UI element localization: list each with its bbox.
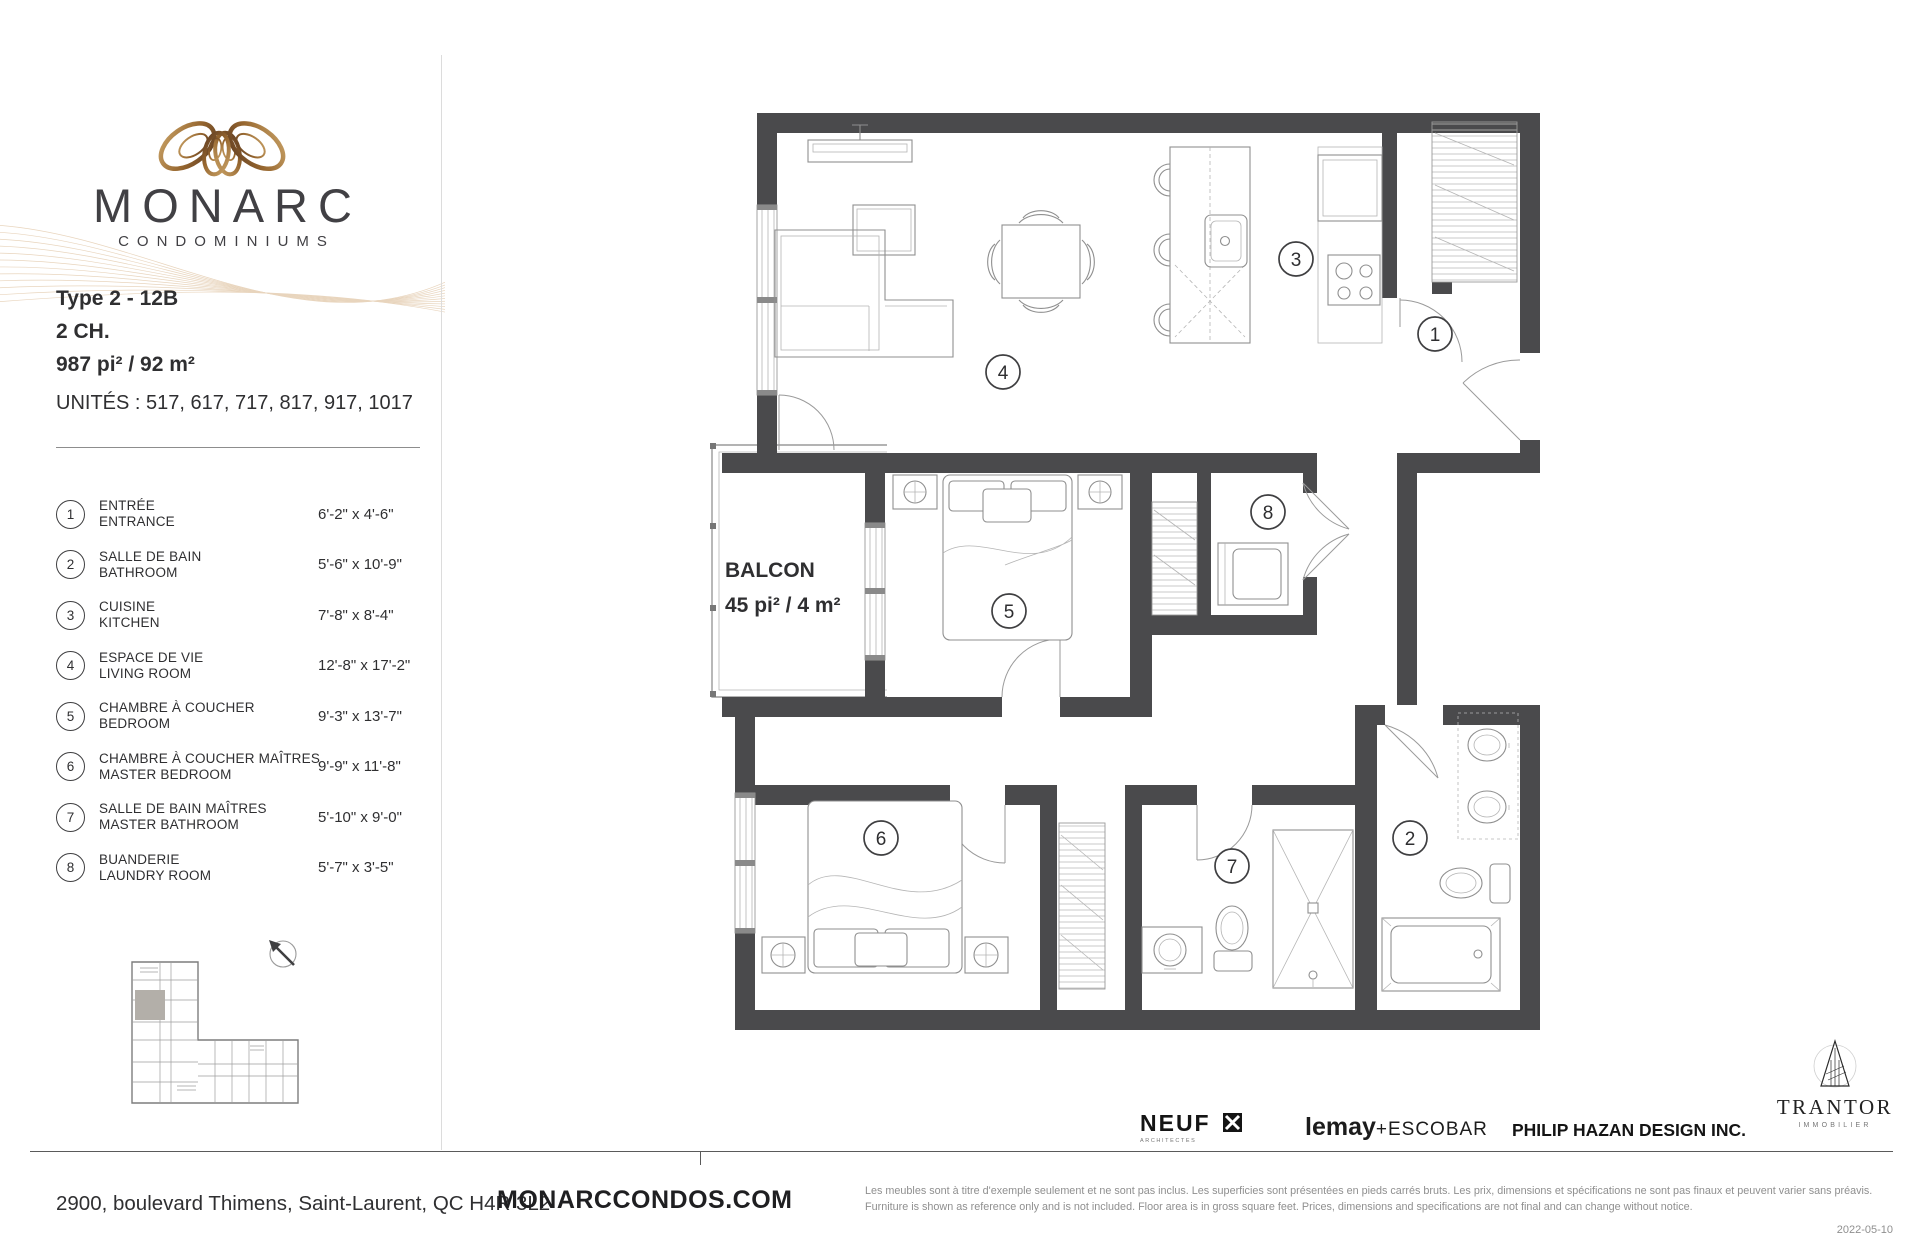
unit-numbers: UNITÉS : 517, 617, 717, 817, 917, 1017 xyxy=(56,392,413,415)
legend-number-badge: 7 xyxy=(56,803,85,832)
lemay-wordmark: lemay xyxy=(1305,1113,1376,1141)
legend-label-en: LIVING ROOM xyxy=(99,666,203,682)
room-badge: 1 xyxy=(1418,317,1452,351)
svg-text:6: 6 xyxy=(876,829,887,850)
bathtub-icon xyxy=(1382,918,1500,991)
room-badge: 5 xyxy=(992,594,1026,628)
legend-row: 2 SALLE DE BAINBATHROOM 5'-6" x 10'-9" xyxy=(56,540,431,591)
legend-number-badge: 1 xyxy=(56,500,85,529)
project-address: 2900, boulevard Thimens, Saint-Laurent, … xyxy=(56,1192,550,1216)
dining-table-icon xyxy=(988,211,1095,313)
neuf-wordmark: NEUF xyxy=(1140,1112,1211,1135)
website-link[interactable]: MONARCCONDOS.COM xyxy=(497,1186,793,1215)
building-key-plan xyxy=(132,962,298,1103)
brand-tagline: CONDOMINIUMS xyxy=(0,233,445,250)
room-badge: 7 xyxy=(1215,849,1249,883)
legend-label-fr: ENTRÉE xyxy=(99,498,175,514)
legend-label-fr: BUANDERIE xyxy=(99,852,211,868)
highlighted-unit xyxy=(135,990,165,1020)
footer-divider-tick xyxy=(700,1151,701,1165)
svg-text:7: 7 xyxy=(1227,857,1238,878)
legend-row: 8 BUANDERIELAUNDRY ROOM 5'-7" x 3'-5" xyxy=(56,843,431,894)
legend-label-fr: SALLE DE BAIN xyxy=(99,549,201,565)
legend-row: 4 ESPACE DE VIELIVING ROOM 12'-8" x 17'-… xyxy=(56,641,431,692)
escobar-wordmark: +ESCOBAR xyxy=(1376,1119,1488,1140)
svg-text:1: 1 xyxy=(1430,325,1441,346)
legend-row: 6 CHAMBRE À COUCHER MAÎTRESMASTER BEDROO… xyxy=(56,742,431,793)
legend-number-badge: 8 xyxy=(56,853,85,882)
legend-dimension: 6'-2" x 4'-6" xyxy=(318,506,394,523)
legend-label-en: BATHROOM xyxy=(99,565,201,581)
butterfly-logo-icon xyxy=(153,114,292,178)
laundry-double-doors xyxy=(1303,483,1349,580)
shower-icon xyxy=(1273,830,1353,988)
legend-dimension: 9'-3" x 13'-7" xyxy=(318,708,402,725)
legend-dimension: 5'-6" x 10'-9" xyxy=(318,556,402,573)
svg-text:2: 2 xyxy=(1405,829,1416,850)
balcony: BALCON 45 pi² / 4 m² xyxy=(710,443,887,697)
legend-row: 3 CUISINEKITCHEN 7'-8" x 8'-4" xyxy=(56,590,431,641)
legend-number-badge: 2 xyxy=(56,550,85,579)
legend-dimension: 5'-7" x 3'-5" xyxy=(318,859,394,876)
legend-label-en: LAUNDRY ROOM xyxy=(99,868,211,884)
room-badge: 2 xyxy=(1393,821,1427,855)
trantor-subtitle: IMMOBILIER xyxy=(1775,1122,1895,1129)
legend-label-en: ENTRANCE xyxy=(99,514,175,530)
legend-label-fr: CUISINE xyxy=(99,599,160,615)
nightstand-icon xyxy=(965,937,1008,973)
unit-type: Type 2 - 12B xyxy=(56,282,195,315)
svg-text:4: 4 xyxy=(998,363,1009,384)
legend-label-fr: CHAMBRE À COUCHER MAÎTRES xyxy=(99,751,320,767)
disclaimer-fr: Les meubles sont à titre d'exemple seule… xyxy=(865,1183,1893,1199)
sofa-icon xyxy=(775,230,953,357)
nightstand-icon xyxy=(762,937,805,973)
plan-date: 2022-05-10 xyxy=(865,1224,1893,1236)
kitchen-island-icon xyxy=(1170,147,1250,343)
bedroom-sliding-door xyxy=(865,523,885,660)
neuf-icon xyxy=(1223,1113,1242,1132)
bedroom-door xyxy=(1002,639,1060,697)
legend-dimension: 12'-8" x 17'-2" xyxy=(318,657,410,674)
legend-label-fr: ESPACE DE VIE xyxy=(99,650,203,666)
toilet-icon xyxy=(1440,864,1510,903)
toilet-icon xyxy=(1214,906,1252,971)
entry-door xyxy=(1463,360,1520,440)
neuf-subtitle: ARCHITECTES xyxy=(1140,1138,1211,1144)
room-badge: 8 xyxy=(1251,495,1285,529)
neuf-logo: NEUF ARCHITECTES xyxy=(1140,1112,1242,1144)
kitchen-furniture xyxy=(1154,147,1382,343)
lemay-escobar-logo: lemay+ESCOBAR xyxy=(1305,1113,1488,1142)
living-room-furniture xyxy=(775,125,1094,357)
legend-label-fr: CHAMBRE À COUCHER xyxy=(99,700,255,716)
trantor-wordmark: TRANTOR xyxy=(1775,1095,1895,1120)
bathroom-door xyxy=(1385,725,1438,778)
legend-row: 1 ENTRÉEENTRANCE 6'-2" x 4'-6" xyxy=(56,489,431,540)
floor-plan: BALCON 45 pi² / 4 m² xyxy=(585,85,1575,1045)
room-legend: 1 ENTRÉEENTRANCE 6'-2" x 4'-6" 2 SALLE D… xyxy=(56,489,431,893)
master-bedroom-window xyxy=(735,793,755,933)
sidebar-rule xyxy=(56,447,420,448)
double-vanity-icon xyxy=(1458,713,1518,839)
master-bathroom-fixtures xyxy=(1142,830,1353,988)
floor-plan-page: MONARC CONDOMINIUMS Type 2 - 12B 2 CH. 9… xyxy=(0,0,1920,1242)
trantor-tree-icon xyxy=(1813,1038,1857,1090)
legend-number-badge: 5 xyxy=(56,702,85,731)
legend-number-badge: 6 xyxy=(56,752,85,781)
legend-dimension: 7'-8" x 8'-4" xyxy=(318,607,394,624)
footer-rule xyxy=(30,1151,1893,1152)
legend-number-badge: 3 xyxy=(56,601,85,630)
room-badge: 4 xyxy=(986,355,1020,389)
stove-icon xyxy=(1328,255,1380,305)
balcony-area: 45 pi² / 4 m² xyxy=(725,594,841,617)
legend-label-en: MASTER BEDROOM xyxy=(99,767,320,783)
legend-label-en: KITCHEN xyxy=(99,615,160,631)
room-badge: 6 xyxy=(864,821,898,855)
disclaimer-en: Furniture is shown as reference only and… xyxy=(865,1199,1893,1215)
legend-row: 7 SALLE DE BAIN MAÎTRESMASTER BATHROOM 5… xyxy=(56,792,431,843)
nightstand-icon xyxy=(893,475,937,509)
bar-stools-icon xyxy=(1154,164,1170,336)
walk-in-closet xyxy=(1059,823,1105,989)
legend-number-badge: 4 xyxy=(56,651,85,680)
washer-icon xyxy=(1218,543,1288,605)
unit-area: 987 pi² / 92 m² xyxy=(56,348,195,381)
svg-text:3: 3 xyxy=(1291,250,1302,271)
fridge-icon xyxy=(1318,155,1382,221)
laundry-furniture xyxy=(1218,543,1288,605)
vanity-sink-icon xyxy=(1142,927,1202,973)
room-badge: 3 xyxy=(1279,242,1313,276)
unit-info: Type 2 - 12B 2 CH. 987 pi² / 92 m² xyxy=(56,282,195,381)
linen-closet xyxy=(1152,502,1197,615)
balcony-label: BALCON xyxy=(725,559,815,582)
svg-text:8: 8 xyxy=(1263,503,1274,524)
legend-label-fr: SALLE DE BAIN MAÎTRES xyxy=(99,801,267,817)
compass-icon xyxy=(269,940,296,967)
brand-name: MONARC xyxy=(0,178,445,233)
entry-closet xyxy=(1432,122,1517,282)
legend-row: 5 CHAMBRE À COUCHERBEDROOM 9'-3" x 13'-7… xyxy=(56,691,431,742)
legend-dimension: 9'-9" x 11'-8" xyxy=(318,758,401,775)
philip-hazan-logo: PHILIP HAZAN DESIGN INC. xyxy=(1512,1120,1746,1141)
legend-label-en: BEDROOM xyxy=(99,716,255,732)
legend-label-en: MASTER BATHROOM xyxy=(99,817,267,833)
legal-disclaimer: Les meubles sont à titre d'exemple seule… xyxy=(865,1183,1893,1215)
trantor-logo: TRANTOR IMMOBILIER xyxy=(1775,1038,1895,1129)
svg-text:5: 5 xyxy=(1004,602,1015,623)
nightstand-icon xyxy=(1078,475,1122,509)
unit-bedrooms: 2 CH. xyxy=(56,315,195,348)
legend-dimension: 5'-10" x 9'-0" xyxy=(318,809,402,826)
